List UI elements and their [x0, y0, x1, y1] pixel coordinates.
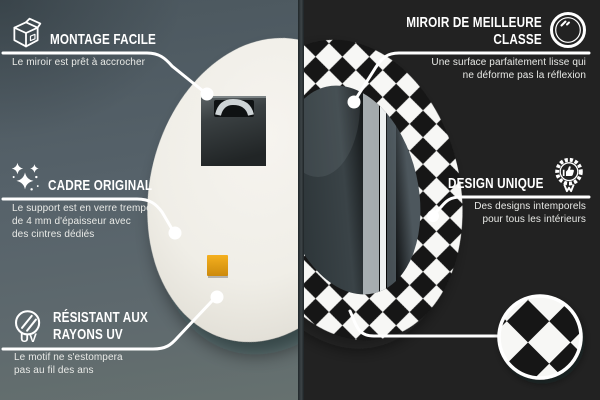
callout-subtitle: Le support est en verre trempé de 4 mm d…: [12, 203, 182, 241]
callout-design-unique: DESIGN UNIQUE Des designs intemporels po…: [421, 156, 588, 227]
sparkles-icon: [8, 160, 42, 196]
callout-subtitle: Le miroir est prêt à accrocher: [12, 57, 186, 70]
callout-title: DESIGN UNIQUE: [448, 176, 544, 194]
callout-title: RÉSISTANT AUX RAYONS UV: [53, 310, 148, 345]
callout-title: MONTAGE FACILE: [50, 32, 156, 50]
callout-title: MIROIR DE MEILLEURE CLASSE: [406, 15, 542, 50]
uv-protection-icon: UV: [10, 308, 47, 345]
callout-miroir-classe: MIROIR DE MEILLEURE CLASSE Une surface p…: [368, 10, 588, 83]
leader-swatch: [350, 311, 497, 336]
dot-uv: [211, 291, 224, 304]
callout-subtitle: Une surface parfaitement lisse qui ne dé…: [368, 57, 586, 83]
dot-miroir: [348, 96, 361, 109]
package-box-icon: [8, 16, 44, 50]
callout-title: CADRE ORIGINAL: [48, 178, 152, 196]
award-badge-icon: [550, 156, 588, 194]
dot-montage: [201, 88, 214, 101]
callout-cadre-original: CADRE ORIGINAL Le support est en verre t…: [8, 160, 182, 241]
uv-icon-label: UV: [20, 331, 37, 345]
round-mirror-icon: [548, 10, 588, 50]
callout-montage-facile: MONTAGE FACILE Le miroir est prêt à accr…: [8, 16, 186, 70]
product-infographic-mirror: MONTAGE FACILE Le miroir est prêt à accr…: [0, 0, 600, 400]
callout-resistant-uv: UV RÉSISTANT AUX RAYONS UV Le motif ne s…: [10, 308, 175, 378]
callout-subtitle: Le motif ne s'estompera pas au fil des a…: [14, 352, 175, 378]
callout-subtitle: Des designs intemporels pour tous les in…: [421, 201, 586, 227]
pattern-detail-magnifier: [499, 296, 581, 378]
